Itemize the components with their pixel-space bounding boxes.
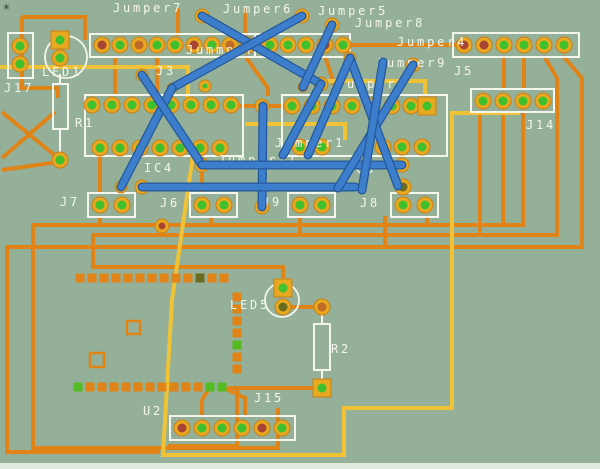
pad-hole: [499, 97, 508, 106]
pad-hole: [178, 424, 187, 433]
smd-pad[interactable]: [233, 353, 242, 362]
pad-hole: [339, 41, 348, 50]
pad-hole: [520, 41, 529, 50]
smd-pad[interactable]: [233, 365, 242, 374]
smd-pad[interactable]: [220, 274, 229, 283]
silk-label-j14[interactable]: J14: [526, 118, 556, 132]
silk-label-ic4[interactable]: IC4: [144, 161, 174, 175]
silk-label-j17[interactable]: J17: [4, 81, 34, 95]
pad-hole: [198, 424, 207, 433]
silk-label-j8[interactable]: J8: [360, 196, 380, 210]
smd-pad[interactable]: [172, 274, 181, 283]
smd-pad[interactable]: [124, 274, 133, 283]
smd-pad[interactable]: [182, 383, 191, 392]
silk-label-jumper8[interactable]: Jumper8: [355, 16, 425, 30]
pad-hole: [288, 102, 297, 111]
smd-pad[interactable]: [208, 274, 217, 283]
smd-pad[interactable]: [146, 383, 155, 392]
pad-hole: [540, 41, 549, 50]
smd-pad[interactable]: [218, 383, 227, 392]
smd-pad[interactable]: [88, 274, 97, 283]
pad-hole: [108, 101, 117, 110]
pad-hole: [56, 54, 65, 63]
pad-hole: [203, 84, 208, 89]
pad-hole: [423, 102, 432, 111]
smd-pad[interactable]: [100, 274, 109, 283]
smd-pad[interactable]: [76, 274, 85, 283]
pad-hole: [159, 223, 166, 230]
pad-hole: [296, 201, 305, 210]
pad-hole: [118, 201, 127, 210]
pad-hole: [539, 97, 548, 106]
silk-label-jumper7[interactable]: Jumper7: [113, 1, 183, 15]
pad-hole: [128, 101, 137, 110]
pad-hole: [302, 41, 311, 50]
pad-hole: [398, 143, 407, 152]
pad-hole: [318, 201, 327, 210]
pad-hole: [171, 41, 180, 50]
silk-label-j15[interactable]: J15: [254, 391, 284, 405]
smd-pad[interactable]: [134, 383, 143, 392]
pad-hole: [318, 384, 327, 393]
smd-pad[interactable]: [206, 383, 215, 392]
pad-hole: [96, 144, 105, 153]
cursor-icon: ✳: [3, 0, 10, 13]
smd-pad[interactable]: [122, 383, 131, 392]
silk-label-u2[interactable]: U2: [143, 404, 163, 418]
pad-hole: [156, 144, 165, 153]
pcb-editor-window: Jumper7Jumper6Jumper5Jumper8Jumper4Jummp…: [0, 0, 600, 469]
smd-pad[interactable]: [86, 383, 95, 392]
pad-hole: [421, 201, 430, 210]
pad-hole: [399, 201, 408, 210]
silk-label-jumper6[interactable]: Jumper6: [223, 2, 293, 16]
silk-label-j6[interactable]: J6: [160, 196, 180, 210]
pad-hole: [16, 60, 25, 69]
pad-hole: [116, 144, 125, 153]
pad-hole: [88, 101, 97, 110]
smd-pad[interactable]: [110, 383, 119, 392]
pad-hole: [500, 41, 509, 50]
pad-hole: [116, 41, 125, 50]
smd-pad[interactable]: [148, 274, 157, 283]
smd-pad[interactable]: [194, 383, 203, 392]
smd-pad[interactable]: [136, 274, 145, 283]
smd-pad[interactable]: [158, 383, 167, 392]
pad-hole: [284, 41, 293, 50]
silk-label-j5[interactable]: J5: [454, 64, 474, 78]
smd-pad[interactable]: [160, 274, 169, 283]
pad-hole: [480, 41, 489, 50]
smd-pad[interactable]: [98, 383, 107, 392]
airwire-segment[interactable]: [262, 106, 263, 207]
pad-hole: [220, 201, 229, 210]
pad-hole: [56, 156, 65, 165]
pad-hole: [198, 201, 207, 210]
smd-pad[interactable]: [233, 317, 242, 326]
silk-label-r1[interactable]: R1: [75, 116, 95, 130]
pad-hole: [479, 97, 488, 106]
smd-pad[interactable]: [233, 329, 242, 338]
pad-hole: [279, 284, 288, 293]
pad-hole: [218, 424, 227, 433]
smd-pad[interactable]: [112, 274, 121, 283]
pad-hole: [98, 41, 107, 50]
silk-label-j3[interactable]: J3: [156, 64, 176, 78]
silk-label-led5[interactable]: LED5: [230, 298, 270, 312]
pad-hole: [227, 101, 236, 110]
pad-hole: [216, 144, 225, 153]
smd-pad[interactable]: [196, 274, 205, 283]
smd-pad[interactable]: [233, 341, 242, 350]
pcb-canvas[interactable]: Jumper7Jumper6Jumper5Jumper8Jumper4Jummp…: [0, 0, 600, 469]
pad-hole: [96, 201, 105, 210]
pad-hole: [348, 102, 357, 111]
silk-label-r2[interactable]: R2: [331, 342, 351, 356]
pad-hole: [56, 36, 65, 45]
pad-hole: [519, 97, 528, 106]
silk-label-jumper4[interactable]: Jumper4: [397, 35, 467, 49]
pad-hole: [318, 303, 327, 312]
pad-hole: [279, 303, 288, 312]
pad-hole: [560, 41, 569, 50]
pad-hole: [135, 41, 144, 50]
pad-hole: [207, 101, 216, 110]
smd-pad[interactable]: [170, 383, 179, 392]
silk-label-led1[interactable]: LED1: [42, 65, 82, 79]
pad-hole: [176, 144, 185, 153]
smd-pad[interactable]: [184, 274, 193, 283]
pad-hole: [187, 101, 196, 110]
pad-hole: [407, 102, 416, 111]
canvas-edge-strip: [0, 463, 600, 469]
pad-hole: [16, 42, 25, 51]
pad-hole: [258, 424, 267, 433]
pad-hole: [238, 424, 247, 433]
silk-label-j7[interactable]: J7: [60, 195, 80, 209]
smd-pad[interactable]: [74, 383, 83, 392]
pad-hole: [153, 41, 162, 50]
pad-hole: [418, 143, 427, 152]
pad-hole: [278, 424, 287, 433]
